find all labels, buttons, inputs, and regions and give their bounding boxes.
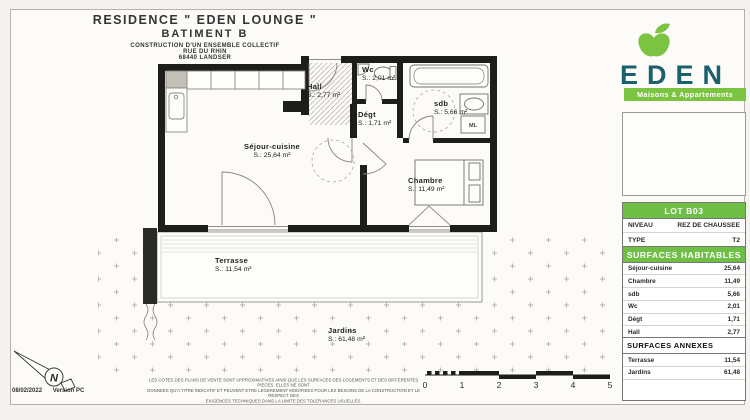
plan-version: Version PC	[53, 388, 85, 394]
version-note: 08/02/2022 Version PC	[12, 388, 93, 394]
svg-text:5: 5	[608, 380, 613, 390]
svg-text:2: 2	[497, 380, 502, 390]
plan-date: 08/02/2022	[12, 388, 42, 394]
svg-text:4: 4	[571, 380, 576, 390]
brand-tagline: Maisons & Appartements	[624, 88, 746, 101]
surfaces-annexes-header: SURFACES ANNEXES	[623, 338, 745, 354]
room-label-sdb: sdbS.: 5,66 m²	[434, 99, 467, 118]
washing-machine-label: ML	[469, 123, 478, 129]
table-row: Wc2,01	[623, 301, 745, 314]
room-label-hall: HallS.: 2,77 m²	[307, 82, 340, 101]
title-block: RESIDENCE " EDEN LOUNGE " BATIMENT B CON…	[70, 13, 340, 61]
lot-table: LOT B03 NIVEAUREZ DE CHAUSSEE TYPET2	[622, 202, 746, 248]
disclaimer: LES COTES DES PLANS DE VENTE SONT APPROX…	[145, 378, 422, 404]
svg-text:1: 1	[460, 380, 465, 390]
lot-row-niveau: NIVEAUREZ DE CHAUSSEE	[623, 219, 745, 234]
table-row: Jardins61,48	[623, 367, 745, 380]
room-label-jardins: JardinsS.: 61,48 m²	[328, 326, 365, 345]
terrace-privacy-wall	[143, 228, 157, 304]
apple-icon	[614, 20, 746, 64]
table-empty-space	[623, 380, 745, 404]
basin-icon	[465, 98, 484, 110]
north-arrow-icon: N	[14, 351, 75, 391]
room-label-terrasse: TerrasseS.: 11,54 m²	[215, 256, 252, 275]
wc-door	[366, 85, 382, 101]
bathroom-door	[409, 116, 433, 140]
brand-name: EDEN	[620, 60, 746, 91]
room-label-degt: DégtS.: 1,71 m²	[358, 110, 391, 129]
siteplan-thumbnail	[622, 112, 746, 196]
table-row: Dégt1,71	[623, 314, 745, 327]
building-title: BATIMENT B	[70, 28, 340, 40]
lot-row-type: TYPET2	[623, 233, 745, 247]
room-label-sejour: Séjour-cuisineS.: 25,64 m²	[244, 142, 300, 161]
svg-text:N: N	[50, 373, 59, 385]
svg-text:0: 0	[423, 380, 428, 390]
svg-text:3: 3	[534, 380, 539, 390]
surfaces-habitables-header: SURFACES HABITABLES	[623, 247, 745, 263]
surfaces-annexes-table: SURFACES ANNEXES Terrasse11,54 Jardins61…	[622, 337, 746, 401]
tilt-window-symbol	[409, 206, 450, 225]
degagement-door	[328, 138, 352, 162]
living-terrace-door	[222, 172, 275, 225]
room-label-chambre: ChambreS.: 11,49 m²	[408, 176, 445, 195]
terrace-deck	[143, 228, 482, 304]
lot-header: LOT B03	[623, 203, 745, 219]
table-row: Chambre11,49	[623, 275, 745, 288]
room-label-wc: WcS.: 2,01 m²	[362, 65, 395, 84]
scale-bar-ticks: 0 1 2 3 4 5	[423, 380, 613, 390]
table-row: sdb5,66	[623, 288, 745, 301]
floor-plan-sheet: ML 0 1 2 3 4	[0, 0, 750, 420]
table-row: Séjour-cuisine25,64	[623, 263, 745, 276]
residence-title: RESIDENCE " EDEN LOUNGE "	[70, 13, 340, 27]
table-row: Terrasse11,54	[623, 354, 745, 367]
